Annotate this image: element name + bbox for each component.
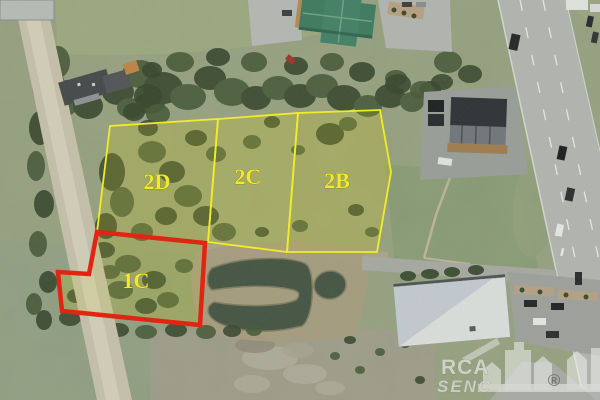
aerial-photo: 2D 2C 2B 1C RCA SENC ® [0,0,600,400]
lot-2d-label: 2D [144,169,171,194]
lot-2b-label: 2B [324,168,350,193]
aerial-parcel-image: 2D 2C 2B 1C RCA SENC ® [0,0,600,400]
registered-mark: ® [548,371,561,390]
watermark-brand: RCA [441,356,490,379]
watermark-sub: SENC [437,377,492,396]
lot-1c-label: 1C [123,268,150,293]
lot-2c-label: 2C [235,164,262,189]
